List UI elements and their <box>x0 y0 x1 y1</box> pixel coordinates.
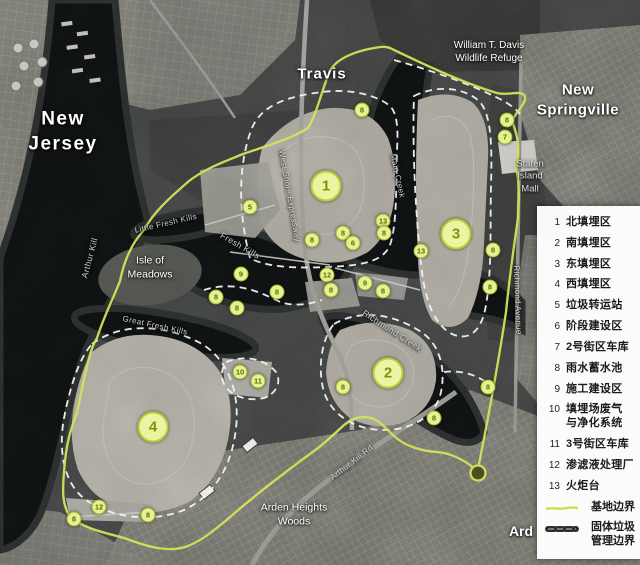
marker-10: 10 <box>233 365 248 380</box>
legend-item-13: 13火炬台 <box>545 480 635 494</box>
marker-9: 9 <box>358 276 373 291</box>
marker-8: 8 <box>483 280 498 295</box>
legend-item-label: 2号街区车库 <box>566 341 629 355</box>
legend-item-number: 10 <box>545 403 560 415</box>
legend-site-boundary: 基地边界 <box>545 501 635 515</box>
marker-8: 8 <box>230 301 245 316</box>
marker-4: 4 <box>138 412 169 443</box>
marker-5: 5 <box>243 200 258 215</box>
map-figure: 12345887138861388898881289888810111288 N… <box>0 0 640 565</box>
marker-8: 8 <box>481 380 496 395</box>
marker-8: 8 <box>305 233 320 248</box>
label-new-springville: New Springville <box>537 81 619 120</box>
legend-item-number: 12 <box>545 459 560 471</box>
legend-item-6: 6阶段建设区 <box>545 320 635 334</box>
marker-2: 2 <box>373 358 404 389</box>
legend-item-label: 填埋场废气 与净化系统 <box>566 403 623 431</box>
legend-waste-boundary-label: 固体垃圾 管理边界 <box>591 521 635 549</box>
legend-item-label: 阶段建设区 <box>566 320 623 334</box>
marker-8: 8 <box>324 283 339 298</box>
legend-item-10: 10填埋场废气 与净化系统 <box>545 403 635 431</box>
marker-8: 8 <box>377 226 392 241</box>
marker-9: 9 <box>234 267 249 282</box>
legend-panel: 1北填埋区2南填埋区3东填埋区4西填埋区5垃圾转运站6阶段建设区72号街区车库8… <box>537 206 640 559</box>
marker-6: 6 <box>346 236 361 251</box>
legend-item-label: 垃圾转运站 <box>566 299 623 313</box>
label-travis: Travis <box>297 64 346 84</box>
legend-item-label: 火炬台 <box>566 480 600 494</box>
legend-item-number: 7 <box>545 341 560 353</box>
marker-8: 8 <box>500 113 515 128</box>
legend-site-boundary-label: 基地边界 <box>591 501 635 515</box>
legend-item-number: 3 <box>545 258 560 270</box>
label-wildlife-refuge: William T. Davis Wildlife Refuge <box>454 39 524 65</box>
site-boundary-swatch <box>545 503 579 513</box>
legend-item-label: 施工建设区 <box>566 383 623 397</box>
marker-8: 8 <box>336 380 351 395</box>
legend-item-label: 东填埋区 <box>566 258 611 272</box>
marker-8: 8 <box>141 508 156 523</box>
legend-item-1: 1北填埋区 <box>545 216 635 230</box>
label-staten-island-mall: Staten Island Mall <box>516 158 543 195</box>
legend-item-label: 渗滤液处理厂 <box>566 459 634 473</box>
legend-item-11: 113号街区车库 <box>545 438 635 452</box>
label-arden-heights-woods: Arden Heights Woods <box>261 501 328 528</box>
legend-item-12: 12渗滤液处理厂 <box>545 459 635 473</box>
legend-item-number: 4 <box>545 278 560 290</box>
legend-item-4: 4西填埋区 <box>545 278 635 292</box>
waste-boundary-swatch <box>545 523 579 535</box>
legend-item-label: 雨水蓄水池 <box>566 362 623 376</box>
legend-item-number: 6 <box>545 320 560 332</box>
label-ard: Ard <box>509 522 533 540</box>
legend-item-label: 西填埋区 <box>566 278 611 292</box>
legend-item-number: 8 <box>545 362 560 374</box>
marker-8: 8 <box>427 411 442 426</box>
legend-item-9: 9施工建设区 <box>545 383 635 397</box>
legend-item-2: 2南填埋区 <box>545 237 635 251</box>
legend-item-label: 北填埋区 <box>566 216 611 230</box>
marker-8: 8 <box>486 243 501 258</box>
marker-8: 8 <box>209 290 224 305</box>
marker-11: 11 <box>251 374 266 389</box>
label-isle-of-meadows: Isle of Meadows <box>128 254 173 281</box>
legend-item-label: 南填埋区 <box>566 237 611 251</box>
legend-item-number: 11 <box>545 438 560 450</box>
label-new-jersey: New Jersey <box>28 107 97 156</box>
marker-8: 8 <box>355 103 370 118</box>
marker-8: 8 <box>67 512 82 527</box>
legend-item-number: 1 <box>545 216 560 228</box>
marker-7: 7 <box>498 130 513 145</box>
legend-waste-boundary: 固体垃圾 管理边界 <box>545 521 635 549</box>
legend-item-7: 72号街区车库 <box>545 341 635 355</box>
legend-item-number: 9 <box>545 383 560 395</box>
marker-8: 8 <box>376 284 391 299</box>
marker-12: 12 <box>92 500 107 515</box>
legend-item-number: 5 <box>545 299 560 311</box>
legend-item-8: 8雨水蓄水池 <box>545 362 635 376</box>
marker-13: 13 <box>414 244 429 259</box>
legend-item-5: 5垃圾转运站 <box>545 299 635 313</box>
legend-item-number: 13 <box>545 480 560 492</box>
legend-item-label: 3号街区车库 <box>566 438 629 452</box>
legend-item-number: 2 <box>545 237 560 249</box>
marker-8: 8 <box>270 285 285 300</box>
legend-item-3: 3东填埋区 <box>545 258 635 272</box>
marker-12: 12 <box>320 268 335 283</box>
marker-1: 1 <box>311 171 342 202</box>
marker-3: 3 <box>441 219 472 250</box>
